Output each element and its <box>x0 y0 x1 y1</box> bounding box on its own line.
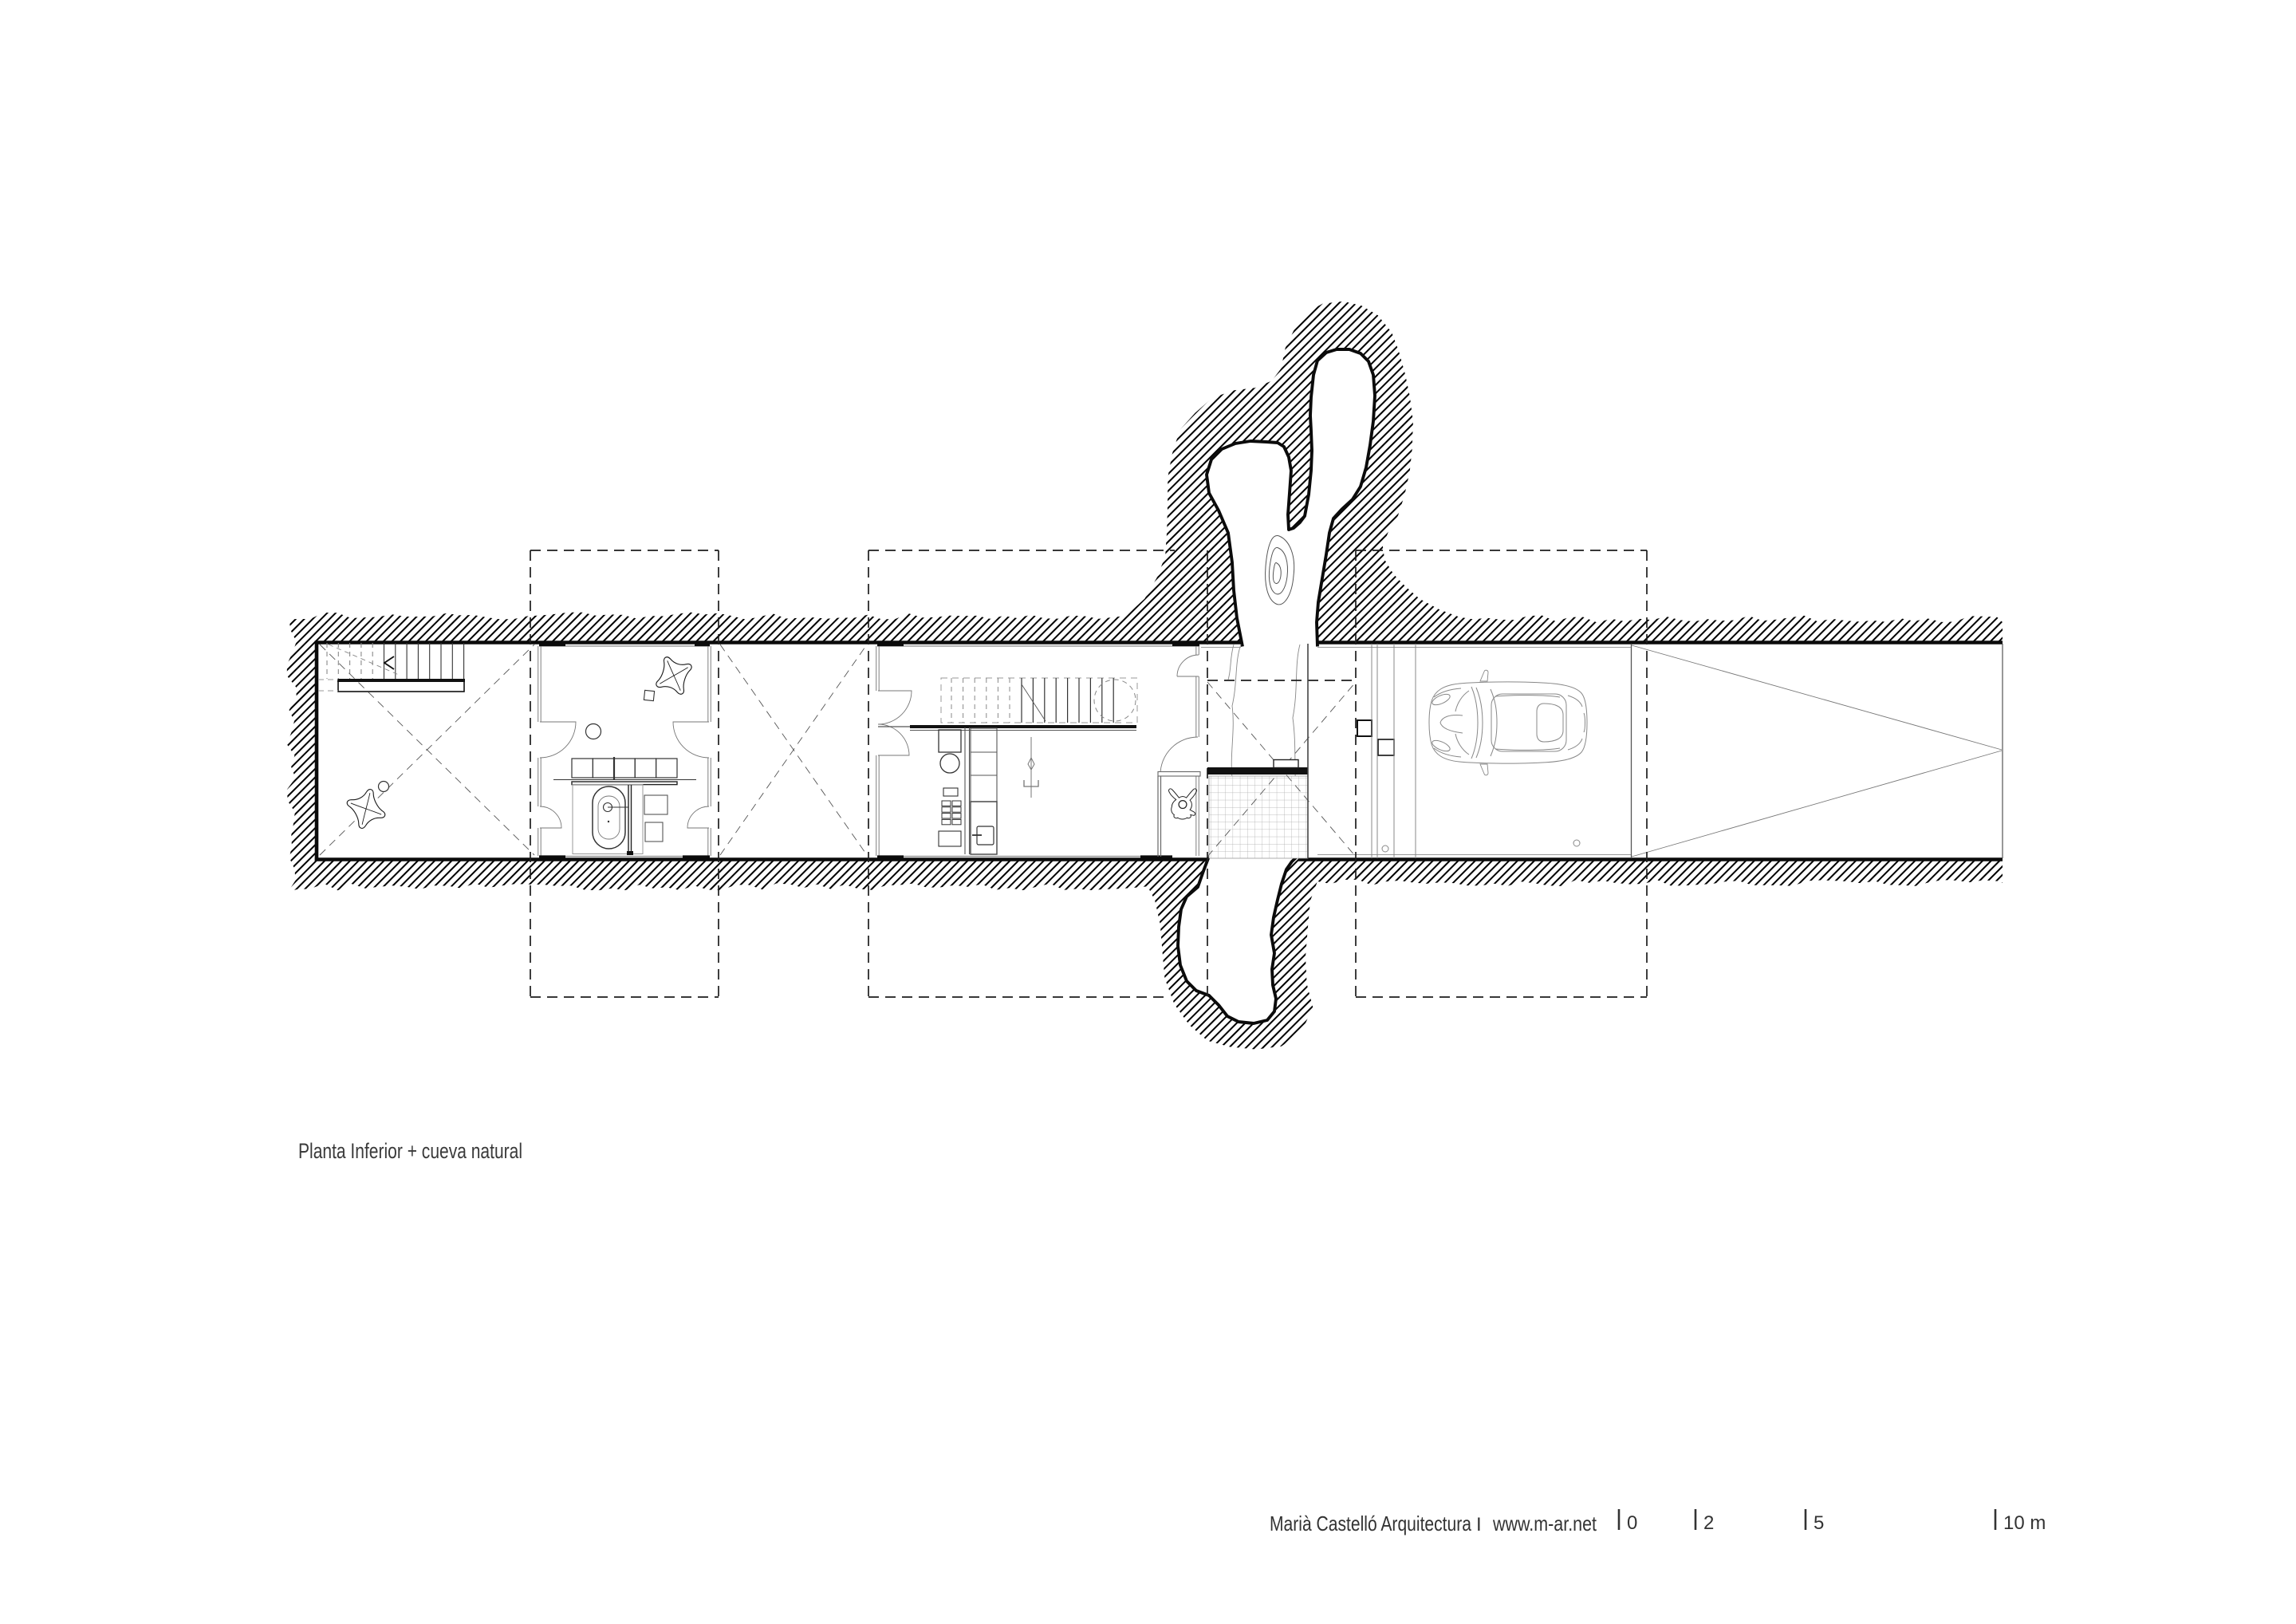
svg-text:10 m: 10 m <box>2003 1512 2046 1534</box>
svg-text:2: 2 <box>1703 1512 1714 1534</box>
svg-text:Marià Castelló Arquitectura: Marià Castelló Arquitectura <box>1270 1512 1471 1535</box>
svg-text:www.m-ar.net: www.m-ar.net <box>1492 1512 1597 1535</box>
svg-text:Planta Inferior + cueva natura: Planta Inferior + cueva natural <box>298 1139 522 1163</box>
svg-text:5: 5 <box>1814 1512 1824 1534</box>
svg-text:0: 0 <box>1627 1512 1637 1534</box>
svg-text:I: I <box>1476 1514 1482 1535</box>
